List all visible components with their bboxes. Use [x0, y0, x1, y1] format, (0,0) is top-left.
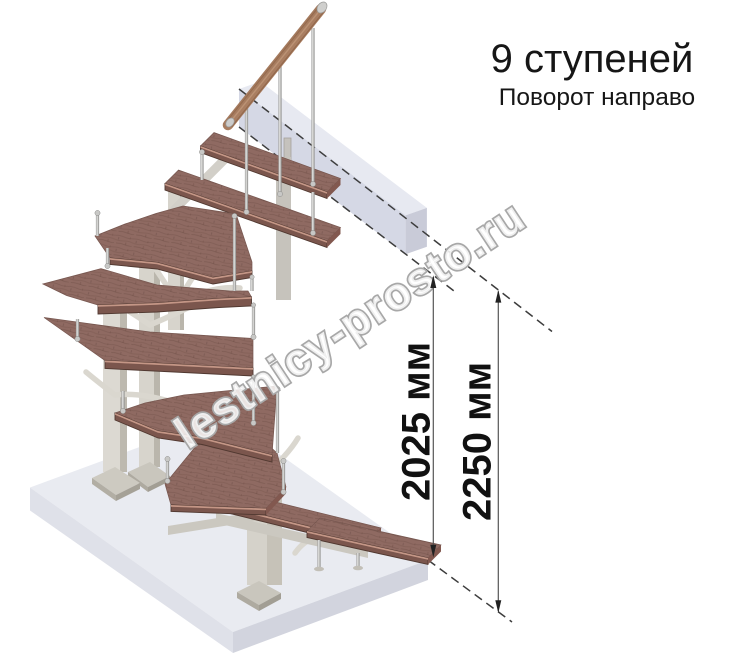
svg-text:9 ступеней: 9 ступеней	[491, 37, 694, 81]
svg-text:2025 мм: 2025 мм	[395, 342, 439, 501]
svg-text:Поворот направо: Поворот направо	[499, 84, 695, 111]
svg-text:2250 мм: 2250 мм	[456, 362, 500, 521]
